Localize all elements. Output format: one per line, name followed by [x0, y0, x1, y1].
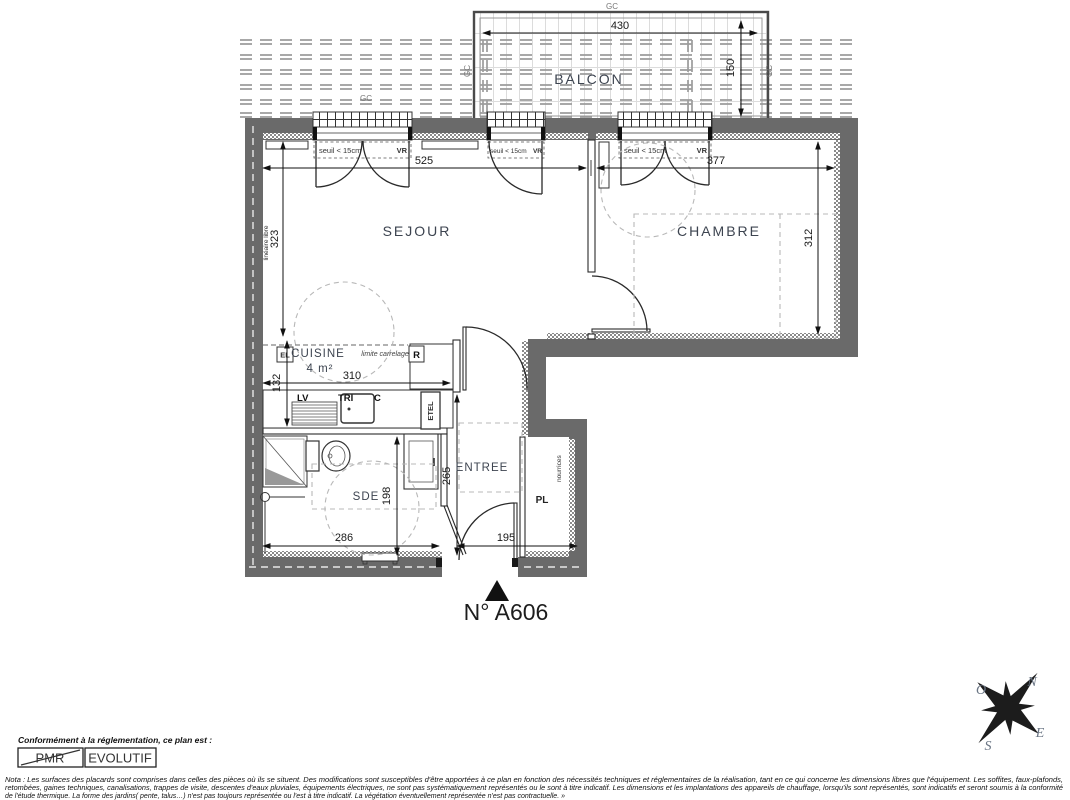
- door-chambre: [592, 276, 650, 332]
- dim-entree-height: 265: [441, 467, 453, 485]
- label-cuisine-area: 4 m²: [307, 363, 334, 375]
- label-chambre: CHAMBRE: [677, 223, 761, 239]
- radiator-sejour-1: [266, 141, 308, 149]
- dim-cuisine-height: 132: [271, 374, 283, 392]
- footer-notes: Nota : Les surfaces des placards sont co…: [5, 775, 1063, 800]
- wall-left: [245, 118, 263, 577]
- compass-south: S: [985, 739, 992, 754]
- label-nourrices: nourrices: [556, 455, 563, 482]
- toilet: [306, 441, 350, 471]
- partition-cuisine-sde: [263, 428, 447, 434]
- compass-north: N: [1026, 675, 1037, 690]
- label-lineaire-libre: linéaire libre: [263, 225, 270, 260]
- towel-rail: [261, 493, 306, 554]
- bathroom-fixtures: [261, 434, 439, 564]
- label-el: EL: [280, 351, 290, 360]
- gc-label-balcony-right: GC: [765, 65, 774, 77]
- window-sejour-2: seuil < 15cm VR: [487, 112, 545, 194]
- label-r: R: [413, 350, 420, 361]
- label-cuisine: CUISINE: [291, 348, 345, 360]
- dim-cuisine-width: 310: [343, 370, 361, 382]
- label-limite-carrelage: limite carrelage: [361, 351, 409, 358]
- dim-sde-height: 198: [381, 487, 393, 505]
- wall-chambre-south: [528, 339, 858, 357]
- label-sejour: SEJOUR: [383, 223, 452, 239]
- shower: [263, 436, 307, 487]
- evolutif-label: EVOLUTIF: [88, 751, 152, 766]
- label-tri: TRI: [338, 393, 353, 404]
- dim-sde-width: 286: [335, 532, 353, 544]
- window-vr-label: VR: [397, 146, 408, 155]
- window-chambre: seuil < 15cm VR: [618, 112, 712, 185]
- window-threshold-label: seuil < 15cm: [319, 146, 361, 155]
- gc-label-top: GC: [606, 2, 618, 11]
- partition-cuisine-entree: [453, 340, 460, 392]
- window-sejour-1: seuil < 15cm VR: [313, 112, 412, 187]
- wall-right: [840, 118, 858, 357]
- nota-line-3: de l'étude thermique. La forme des jardi…: [5, 791, 565, 800]
- partition-sejour-chambre: [588, 140, 595, 272]
- gc-label-balcony-left: GC: [463, 65, 472, 77]
- label-etel: ETEL: [426, 401, 435, 421]
- dim-entree-width: 195: [497, 532, 515, 544]
- conformity-label: Conformément à la réglementation, ce pla…: [18, 735, 212, 745]
- door-sde: [444, 505, 466, 555]
- radiator-sejour-2: [422, 141, 478, 149]
- label-lv: LV: [297, 393, 309, 404]
- label-balcon: BALCON: [554, 71, 624, 87]
- compass-east: E: [1035, 726, 1045, 741]
- label-entree: ENTREE: [456, 462, 509, 474]
- label-placard: PL: [536, 495, 549, 506]
- dim-chambre-height: 312: [803, 229, 815, 247]
- washbasin-cabinet: [404, 434, 438, 489]
- dim-balcony-depth: 150: [725, 59, 737, 77]
- dim-sejour-width: 525: [415, 155, 433, 167]
- radiators: [266, 141, 609, 188]
- unit-number: N° A606: [464, 599, 549, 625]
- wall-pl-step: [528, 419, 587, 437]
- entrance-marker: [485, 580, 509, 601]
- dish-drainer: [292, 402, 337, 425]
- dim-chambre-width: 377: [707, 155, 725, 167]
- compass-rose: N O E S: [948, 647, 1068, 769]
- window-threshold-label: seuil < 15cm: [490, 148, 527, 155]
- dim-sejour-height: 323: [269, 230, 281, 248]
- compass-west: O: [976, 683, 986, 698]
- label-c: C: [374, 393, 381, 404]
- door-sejour-entree: [463, 327, 527, 390]
- window-vr-label: VR: [533, 148, 542, 155]
- footer-legend: Conformément à la réglementation, ce pla…: [18, 735, 212, 767]
- floor-plan: GC GC GC GC 430 150: [0, 0, 1070, 800]
- radiator-chambre: [599, 142, 609, 188]
- dim-balcony-width: 430: [611, 20, 629, 32]
- window-vr-label: VR: [697, 146, 708, 155]
- window-threshold-label: seuil < 15cm: [624, 146, 666, 155]
- label-sde: SDE: [353, 491, 380, 503]
- gc-label-left: GC: [360, 94, 372, 103]
